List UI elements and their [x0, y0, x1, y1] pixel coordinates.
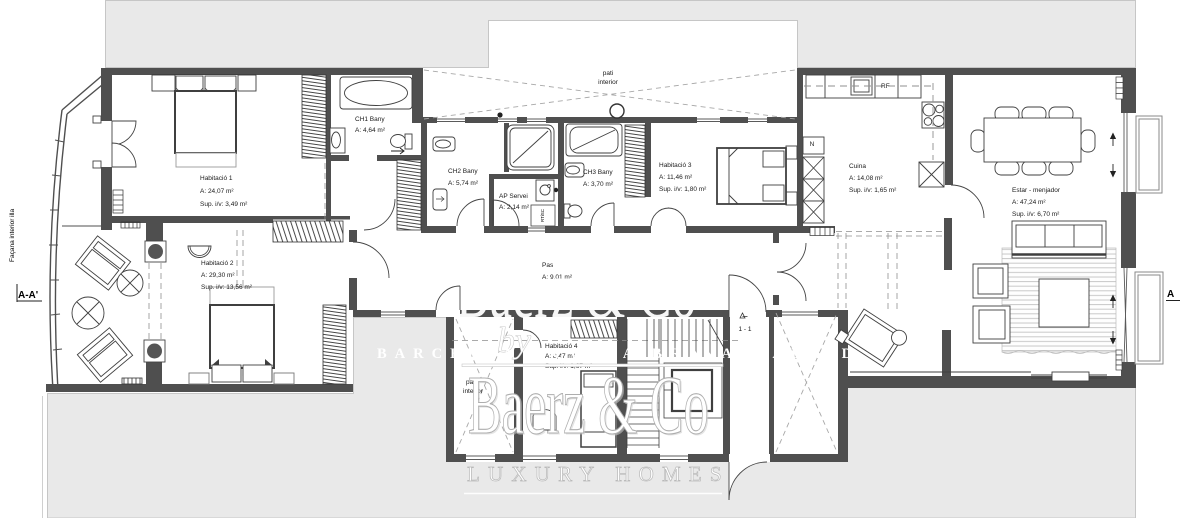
svg-text:CH1 Bany: CH1 Bany	[355, 116, 385, 123]
svg-text:Sup. i/v: 6,70 m²: Sup. i/v: 6,70 m²	[1012, 211, 1060, 218]
svg-text:RTiSC: RTiSC	[540, 208, 545, 222]
svg-text:Habitació 3: Habitació 3	[659, 162, 692, 169]
svg-text:AP Servei: AP Servei	[499, 193, 528, 200]
svg-text:A: 11,46 m²: A: 11,46 m²	[659, 174, 693, 181]
svg-text:A: 5,74 m²: A: 5,74 m²	[448, 180, 479, 187]
svg-text:N: N	[810, 141, 815, 148]
svg-text:CH2 Bany: CH2 Bany	[448, 168, 478, 175]
svg-text:CH3 Bany: CH3 Bany	[583, 169, 613, 176]
svg-text:Cuina: Cuina	[849, 163, 866, 170]
svg-text:1 - 1: 1 - 1	[738, 326, 751, 333]
svg-text:Baerz & Co: Baerz & Co	[456, 242, 697, 335]
svg-text:Estar - menjador: Estar - menjador	[1012, 187, 1061, 194]
svg-text:A: 4,64 m²: A: 4,64 m²	[355, 127, 386, 134]
svg-text:A: 47,24 m²: A: 47,24 m²	[1012, 199, 1046, 206]
svg-text:A-A': A-A'	[18, 290, 38, 301]
svg-text:A: A	[1167, 289, 1174, 300]
svg-text:Habitació 2: Habitació 2	[201, 260, 234, 267]
svg-text:Façana interior illa: Façana interior illa	[9, 209, 16, 262]
svg-text:interior: interior	[598, 79, 619, 86]
svg-text:Sup. i/v: 1,65 m²: Sup. i/v: 1,65 m²	[849, 187, 897, 194]
svg-text:Sup. i/v: 1,80 m²: Sup. i/v: 1,80 m²	[659, 186, 707, 193]
svg-text:Habitació 1: Habitació 1	[200, 175, 233, 182]
svg-text:RF: RF	[881, 83, 890, 90]
svg-text:A: 29,30 m²: A: 29,30 m²	[201, 272, 235, 279]
svg-text:A: 3,70 m²: A: 3,70 m²	[583, 181, 614, 188]
svg-text:pati: pati	[603, 70, 613, 77]
svg-text:Baerz & Co: Baerz & Co	[468, 358, 709, 451]
svg-text:Sup. i/v: 3,49 m²: Sup. i/v: 3,49 m²	[200, 201, 248, 208]
svg-text:Sup. i/v: 13,56 m²: Sup. i/v: 13,56 m²	[201, 284, 253, 291]
svg-text:A: 2,14 m²: A: 2,14 m²	[499, 204, 530, 211]
svg-text:LUXURY HOMES: LUXURY HOMES	[467, 462, 730, 486]
svg-text:A: 14,08 m²: A: 14,08 m²	[849, 175, 883, 182]
svg-text:A: 24,07 m²: A: 24,07 m²	[200, 188, 234, 195]
